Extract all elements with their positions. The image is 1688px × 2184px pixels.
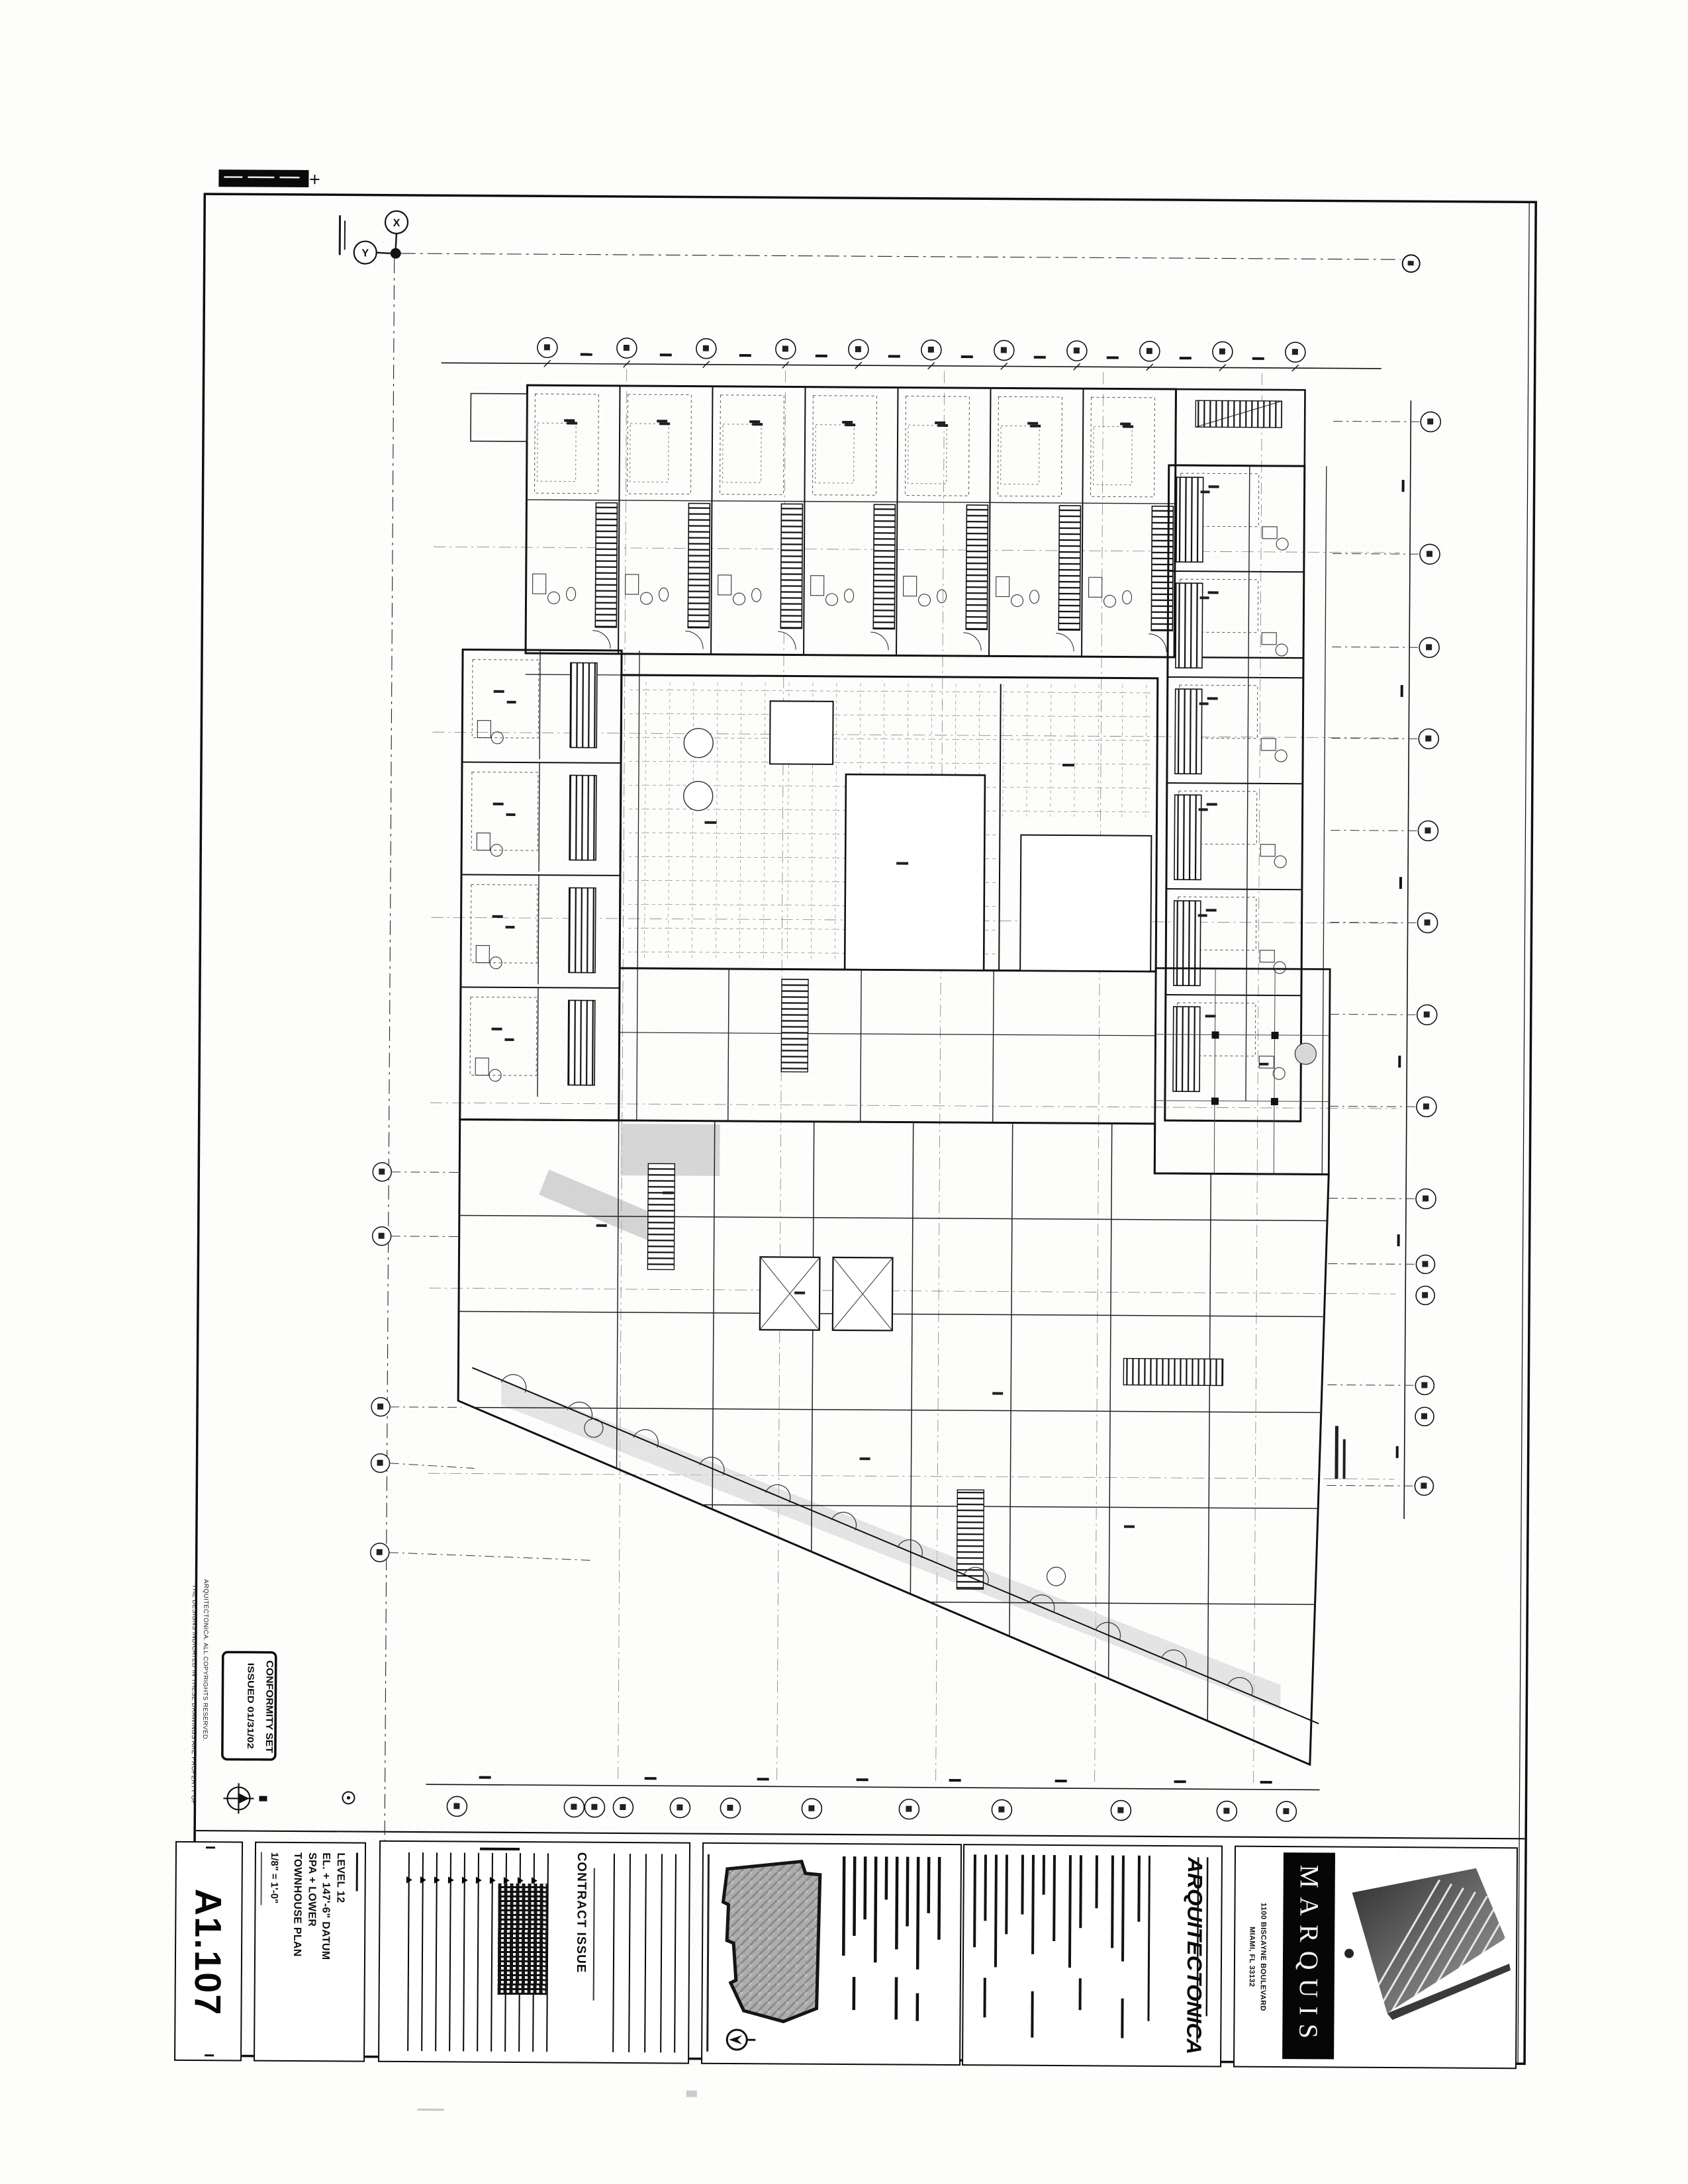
drawing-sheet: X Y: [0, 0, 1688, 2184]
sheet-border: [193, 194, 1536, 2064]
grid-bubbles-bottom: [426, 1776, 1319, 1821]
copyright-disclaimer: THE DESIGNS INDICATED IN THESE DRAWINGS …: [189, 1579, 209, 1805]
keyplan-site-shape: [722, 1861, 820, 2022]
project-address-line1: 1100 BISCAYNE BOULEVARD: [1257, 1858, 1269, 2056]
project-name: MARQUIS: [1284, 1852, 1334, 2059]
scan-label-bar: [218, 169, 319, 187]
revision-date-cluster: [498, 1884, 547, 1995]
keyplan-panel: [701, 1843, 962, 2066]
datum-x-label: X: [393, 218, 400, 229]
north-arrow-icon: [727, 2030, 755, 2050]
sheet-title-box: LEVEL 12 EL. + 147'-6" DATUM SPA + LOWER…: [254, 1842, 366, 2062]
scanned-sheet-page: X Y: [0, 0, 1688, 2184]
datum-origin: X Y: [328, 210, 1420, 2058]
project-logo-banner: MARQUIS: [1282, 1852, 1335, 2059]
title-line-3: SPA + LOWER: [303, 1852, 319, 2063]
drawing-scale: 1/8" = 1'-0": [267, 1852, 280, 2063]
building-rendering: [1339, 1853, 1514, 2064]
survey-marker-icon: [223, 1783, 267, 1813]
svg-text:THE DESIGNS INDICATED IN THESE: THE DESIGNS INDICATED IN THESE DRAWINGS …: [189, 1584, 198, 1804]
benchmark-icon: [342, 1792, 354, 1803]
grid-bubbles-left: [371, 1163, 596, 1563]
datum-y-label: Y: [361, 248, 369, 259]
sheet-number: A1.107: [175, 1843, 240, 2063]
keyplan-graphic: [702, 1844, 959, 2064]
issue-revision-panel: CONTRACT ISSUE: [378, 1841, 690, 2064]
sheet-number-box: A1.107: [174, 1841, 243, 2062]
stamp-line1: CONFORMITY SET: [263, 1661, 275, 1753]
project-address-line2: MIAMI, FL 33132: [1246, 1858, 1258, 2056]
title-line-2: EL. + 147'-6" DATUM: [318, 1852, 334, 2063]
architect-graphic: ARQUITECTONICA: [963, 1845, 1220, 2065]
title-line-4: TOWNHOUSE PLAN: [289, 1852, 305, 2063]
contract-issue-heading: CONTRACT ISSUE: [574, 1852, 588, 1974]
project-panel: 1100 BISCAYNE BOULEVARD MIAMI, FL 33132 …: [1233, 1846, 1518, 2070]
grid-bubbles-right: [1327, 400, 1440, 1519]
conformity-stamp: CONFORMITY SET ISSUED 01/31/02: [222, 1652, 276, 1759]
title-line-1: LEVEL 12: [332, 1852, 348, 2063]
architect-name: ARQUITECTONICA: [1182, 1856, 1207, 2054]
svg-text:ARQUITECTONICA. ALL COPYRIGHTS: ARQUITECTONICA. ALL COPYRIGHTS RESERVED.: [201, 1579, 209, 1741]
architect-panel: ARQUITECTONICA: [962, 1844, 1223, 2067]
stamp-line2: ISSUED 01/31/02: [246, 1662, 256, 1749]
consultant-text-columns: [841, 1856, 941, 2021]
architect-info-columns: [972, 1854, 1150, 2038]
room-label-smudges: [502, 422, 1352, 1529]
grid-bubbles-top: [442, 337, 1382, 372]
